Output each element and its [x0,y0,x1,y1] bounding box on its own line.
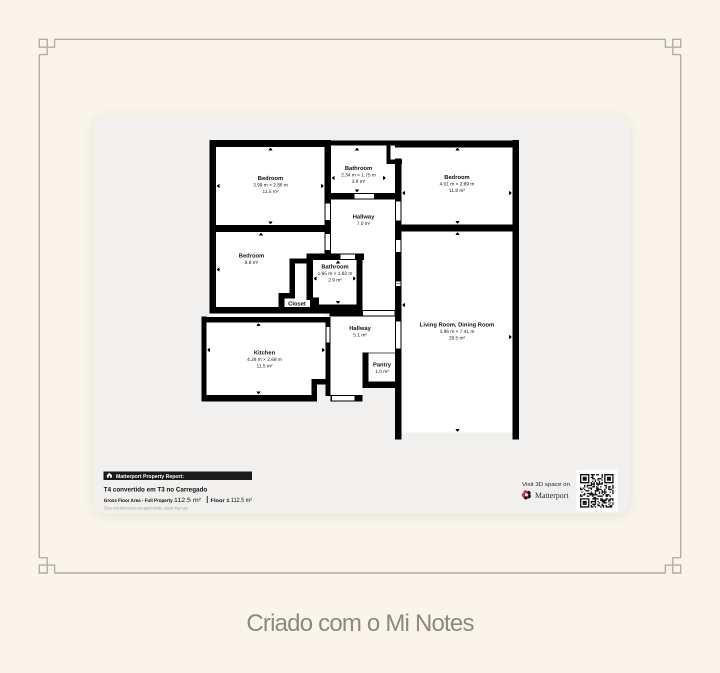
svg-text:29.5 m²: 29.5 m² [449,335,466,341]
svg-text:2.34 m × 1.75 m: 2.34 m × 1.75 m [341,173,376,179]
svg-text:Hallway: Hallway [353,214,375,221]
svg-text:Matterport: Matterport [535,491,569,500]
svg-text:Closet: Closet [288,301,306,308]
svg-text:11.5 m²: 11.5 m² [257,363,273,369]
svg-text:Visit 3D space on: Visit 3D space on [522,482,570,488]
svg-text:112.5 m²: 112.5 m² [174,497,201,504]
svg-text:1.0 m²: 1.0 m² [375,369,389,375]
svg-text:Kitchen: Kitchen [254,350,276,357]
svg-text:2.9 m²: 2.9 m² [328,277,342,283]
svg-text:Bedroom: Bedroom [444,174,469,181]
svg-text:Bedroom: Bedroom [258,175,283,182]
svg-text:Floor 1: Floor 1 [211,498,230,504]
svg-text:3.9 m²: 3.9 m² [352,179,366,185]
svg-text:Bedroom: Bedroom [239,253,264,260]
svg-text:T4 convertido em T3 no Carrega: T4 convertido em T3 no Carregado [104,486,207,493]
svg-text:Hallway: Hallway [349,325,371,332]
svg-text:7.0 m²: 7.0 m² [357,221,371,227]
svg-text:11.5 m²: 11.5 m² [263,189,279,195]
svg-text:Gross Floor Area - Full Proper: Gross Floor Area - Full Property [104,498,173,504]
svg-text:Bathroom: Bathroom [321,264,348,271]
svg-text:Matterport Property Report:: Matterport Property Report: [116,474,184,480]
svg-text:Sizes and dimensions are appro: Sizes and dimensions are approximate, ac… [104,505,189,510]
svg-text:Bathroom: Bathroom [345,165,372,172]
svg-text:8.8 m²: 8.8 m² [245,260,259,266]
svg-text:3.96 m × 7.41 m: 3.96 m × 7.41 m [440,329,475,335]
svg-text:4.01 m × 2.89 m: 4.01 m × 2.89 m [440,182,475,188]
svg-text:3.99 m × 2.86 m: 3.99 m × 2.86 m [253,183,288,189]
svg-text:4.29 m × 2.69 m: 4.29 m × 2.69 m [247,357,282,363]
svg-text:1.65 m × 1.82 m: 1.65 m × 1.82 m [318,271,353,277]
svg-text:5.1 m²: 5.1 m² [353,332,367,338]
svg-text:11.8 m²: 11.8 m² [449,188,465,194]
svg-text:Pantry: Pantry [373,363,392,369]
svg-text:112.5 m²: 112.5 m² [231,497,252,504]
svg-text:Living Room, Dining Room: Living Room, Dining Room [420,322,494,329]
